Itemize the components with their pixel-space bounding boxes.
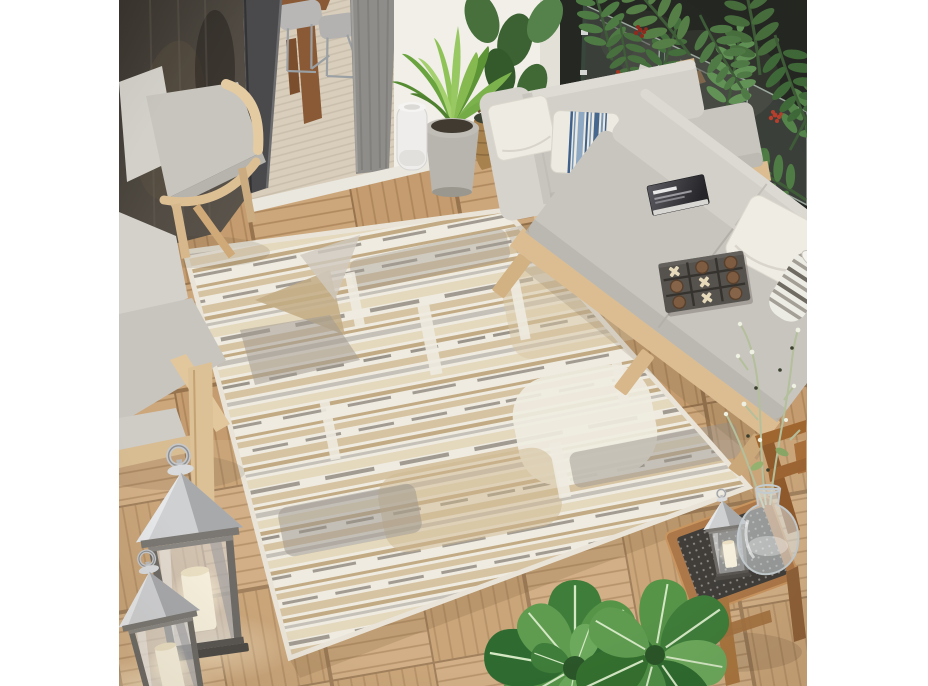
photo-vignette [119,0,807,686]
terrace-photo [0,0,928,686]
photo-frame [0,0,928,686]
